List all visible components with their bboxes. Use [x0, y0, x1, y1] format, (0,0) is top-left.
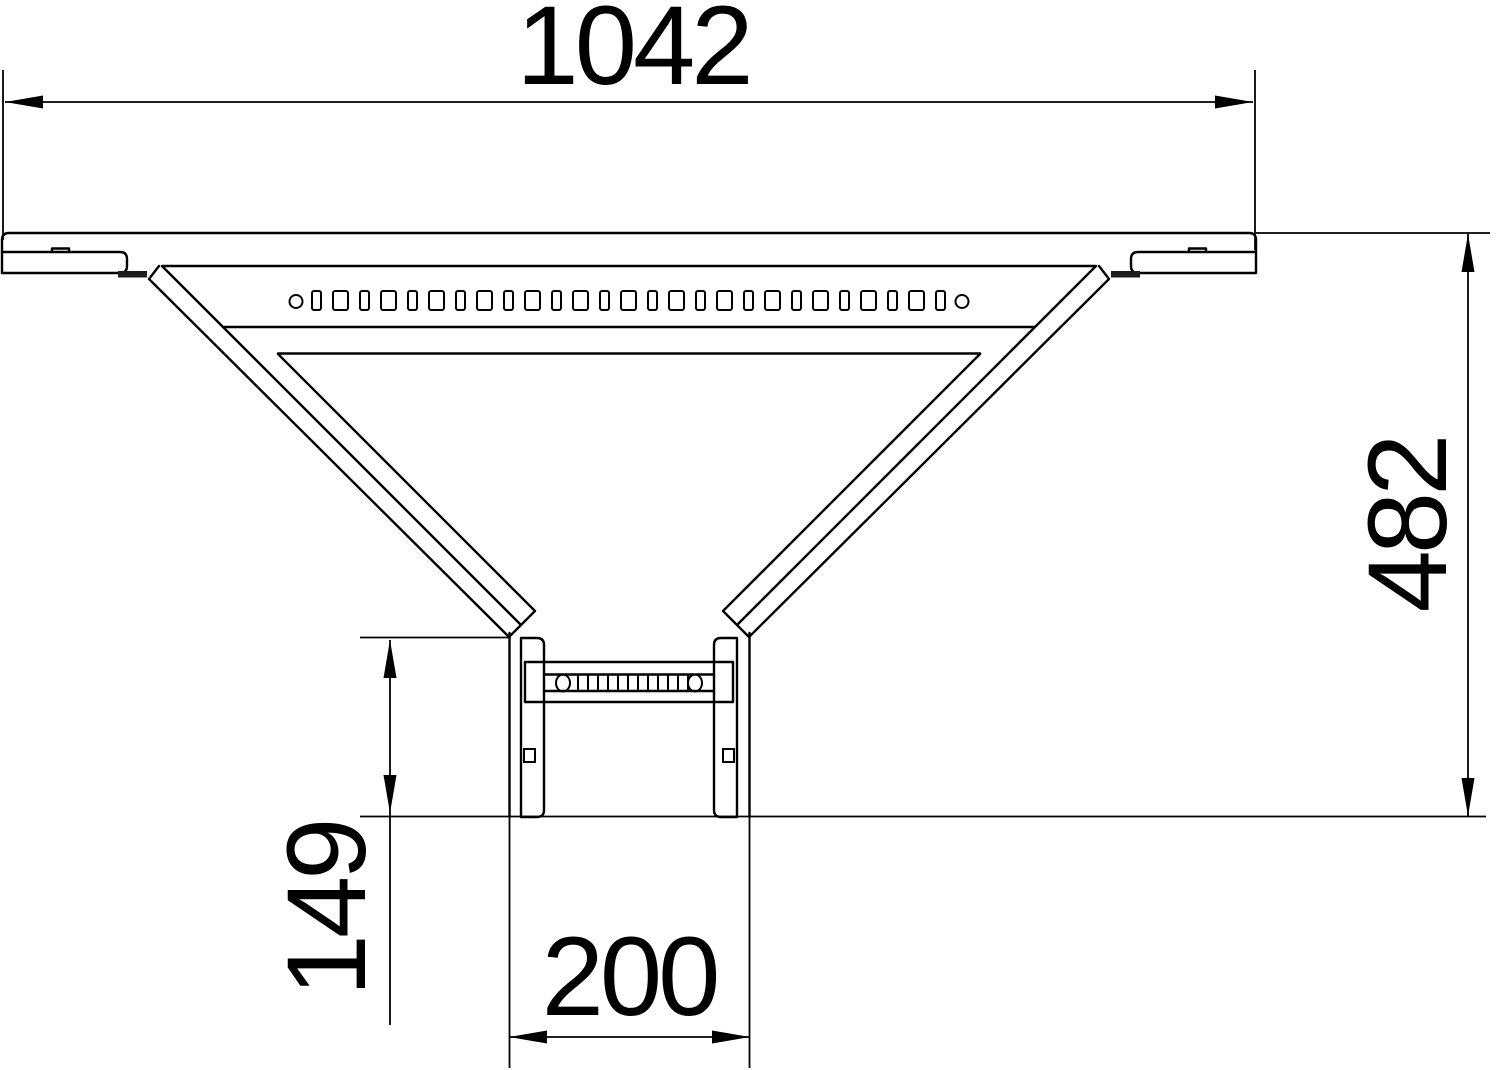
rung-hole-right [688, 675, 702, 692]
rung-perforation [578, 675, 688, 691]
branch-left-notch [524, 749, 535, 762]
rung-hole-left [556, 675, 570, 692]
right-coupler-block [1131, 252, 1256, 273]
technical-drawing-page: 1042 482 149 200 [0, 0, 1500, 1070]
left-diagonal-rail-outer [162, 266, 521, 625]
dim-label-overall-width: 1042 [516, 0, 749, 102]
ladder-tee-body [2, 233, 1256, 817]
dimension-annotations [3, 70, 1490, 1068]
dim-label-branch-stub-height: 149 [271, 822, 383, 997]
dim-label-branch-width: 200 [542, 921, 717, 1033]
rivet-hole-left [290, 295, 303, 308]
branch-right-notch [723, 749, 734, 762]
left-coupler-block [2, 252, 127, 273]
left-connector-clamp [118, 271, 147, 278]
drawing-canvas [0, 0, 1500, 1070]
dim-label-overall-height: 482 [1352, 438, 1464, 613]
right-diagonal-rail-outer [737, 266, 1096, 625]
branch-rung [525, 662, 733, 702]
rivet-hole-right [956, 295, 969, 308]
right-connector-clamp [1111, 271, 1140, 278]
perforation-strip [312, 291, 945, 310]
